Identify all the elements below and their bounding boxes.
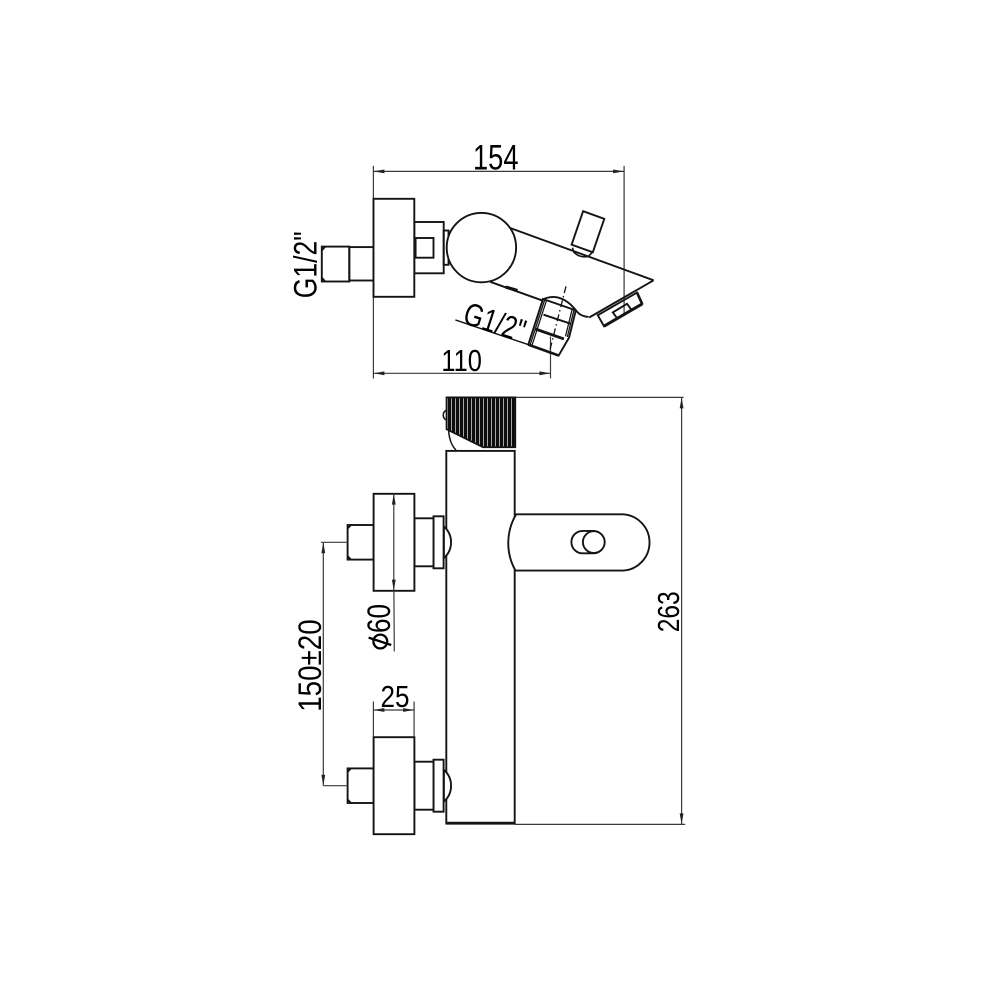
svg-text:G1/2": G1/2"	[459, 295, 530, 349]
svg-text:25: 25	[381, 679, 410, 714]
svg-text:154: 154	[473, 139, 519, 178]
svg-text:150±20: 150±20	[292, 619, 328, 712]
svg-text:G1/2": G1/2"	[287, 231, 323, 298]
svg-text:110: 110	[441, 343, 482, 378]
svg-text:263: 263	[651, 591, 686, 632]
svg-text:60: 60	[361, 604, 397, 633]
